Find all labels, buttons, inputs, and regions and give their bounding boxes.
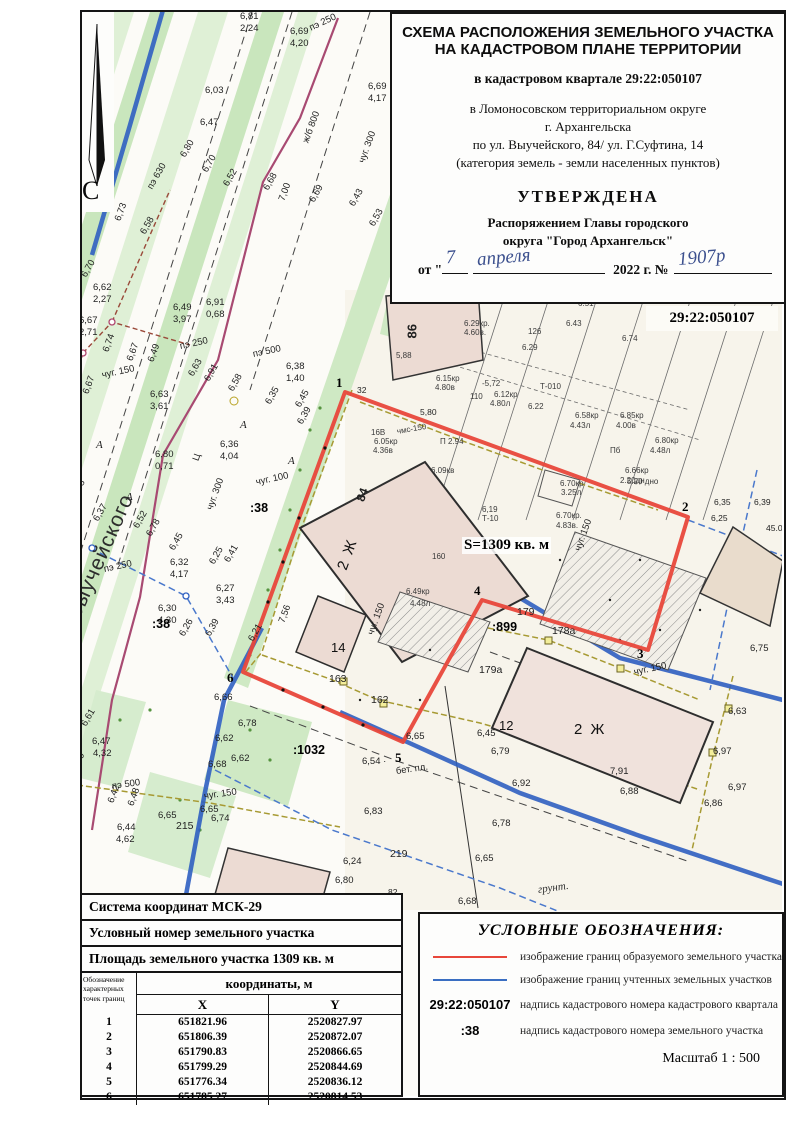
map-label: 6,63 [150,390,169,400]
table-header: Обозначение характерных точек границ коо… [82,973,401,1015]
map-label: 6.70кр [560,480,584,488]
map-label: 6,27 [216,584,235,594]
map-label: 6,62 [231,754,250,764]
map-label: 6,78 [238,719,257,729]
map-label: 84 [354,486,370,503]
cadastral-quarter-label: 29:22:050107 [646,306,778,331]
map-label: 6,44 [117,823,136,833]
point-number: 6 [82,1090,137,1105]
points-column-header: Обозначение характерных точек границ [82,973,137,1015]
table-row: 3651790.832520866.65 [82,1045,401,1060]
new-boundary-line-sample [433,956,507,958]
quarter-line: в кадастровом квартале 29:22:050107 [392,71,784,87]
map-label: 6,49 [173,303,192,313]
legend-items: изображение границ образуемого земельног… [420,951,782,1038]
map-label: 3,97 [173,315,192,325]
day-blank: 7 [442,260,468,274]
map-label: :38 [152,618,170,631]
map-label: 6,67 [80,316,98,326]
map-label: 6,79 [491,747,510,757]
coords-column-header: координаты, м [137,973,401,995]
number-blank: 1907р [674,260,772,274]
map-label: 6,21 [247,622,264,643]
month-blank: апреля [473,260,605,274]
map-label: 2 Ж [574,722,606,737]
map-label: 6,39 [296,405,313,426]
map-label: 4.60в. [464,329,486,337]
map-label: 6,80 [155,450,174,460]
map-label: 6,91 [203,362,220,383]
title-block: СХЕМА РАСПОЛОЖЕНИЯ ЗЕМЕЛЬНОГО УЧАСТКА НА… [390,12,786,304]
map-label: 3 [637,647,644,660]
map-label: 6,63 [728,707,747,717]
map-label: 0,71 [155,462,174,472]
map-label: 6,66 [214,693,233,703]
map-label: 6,53 [368,207,385,228]
map-label: 6,97 [728,783,747,793]
x-coordinate: 651785.27 [137,1090,269,1105]
map-label: 16В [371,429,385,437]
x-coordinate: 651806.39 [137,1030,269,1045]
map-label: 6.66кр [625,467,649,475]
map-label: 6,69 [290,27,309,37]
map-label: 6,80 [179,138,196,159]
y-coordinate: 2520844.69 [269,1060,401,1075]
north-letter: С [82,176,99,206]
map-label: А [96,440,103,451]
map-label: 6,67 [126,342,141,363]
map-label: 7,00 [278,182,293,203]
coords-body: 1651821.962520827.972651806.392520872.07… [82,1015,401,1105]
y-coordinate: 2520872.07 [269,1030,401,1045]
map-label: 12 [499,719,513,732]
map-label: 7,56 [278,604,293,625]
map-label: 5,80 [420,408,437,417]
handwritten-month: апреля [476,245,531,272]
legend-item: изображение границ образуемого земельног… [420,951,782,963]
map-label: 4.36в [373,447,393,455]
map-label: чуг. 150 [633,661,667,677]
map-label: 4,32 [93,749,112,759]
table-row: 4651799.292520844.69 [82,1060,401,1075]
map-label: Т-010 [540,383,561,391]
map-label: 215 [176,821,194,832]
registered-boundary-line-sample [433,979,507,981]
map-label: пэ 500 [252,344,282,359]
map-label: 6,74 [211,814,230,824]
map-label: 6,58 [80,478,87,499]
handwritten-day: 7 [445,247,456,270]
map-label: 6,69 [308,183,325,204]
map-label: 6,75 [750,644,769,654]
map-label: 6,63 [187,357,204,378]
map-label: 6,24 [343,857,362,867]
point-number: 3 [82,1045,137,1060]
map-label: 6,65 [158,811,177,821]
map-label: :1032 [293,744,325,757]
map-label: 6,92 [512,779,531,789]
address-line: по ул. Выучейского, 84/ ул. Г.Суфтина, 1… [392,137,784,153]
legend-item-text: надпись кадастрового номера кадастрового… [520,999,778,1011]
map-label: 6.49кр [406,588,430,596]
legend-item: изображение границ учтенных земельных уч… [420,974,782,986]
legend-sample-text: 29:22:050107 [430,997,511,1012]
map-label: 6,80 [335,876,354,886]
map-label: 4,17 [170,570,189,580]
map-label: 179а [479,665,502,676]
map-label: 6.22 [528,403,544,411]
point-number: 5 [82,1075,137,1090]
x-column-header: X [137,995,269,1015]
map-label: чуг. 300 [206,477,226,511]
map-label: чуг. 100 [255,471,289,487]
map-label: :38 [250,502,268,515]
table-row: 1651821.962520827.97 [82,1015,401,1030]
map-label: 6,88 [620,787,639,797]
map-label: 2 [682,500,689,513]
map-label: 6,39 [204,617,221,638]
map-label: 6,67 [82,375,97,396]
map-label: чуг. 300 [358,130,378,164]
legend-item-text: надпись кадастрового номера земельного у… [520,1025,763,1037]
map-label: 32 [357,386,366,395]
coordinates-table: Система координат МСК-29 Условный номер … [80,893,403,1097]
map-label: 6.70кр. [556,512,582,520]
y-column-header: Y [269,995,401,1015]
legend-sample-text: :38 [461,1023,480,1038]
map-label: 6,70 [201,153,218,174]
map-label: 4.00в [616,422,636,430]
y-coordinate: 2520866.65 [269,1045,401,1060]
map-label: 6,78 [145,517,162,538]
map-label: 179 [517,607,535,618]
map-label: 6.29 [522,344,538,352]
map-label: 4.80л [490,400,510,408]
map-label: 6.80кр [655,437,679,445]
approved-heading: УТВЕРЖДЕНА [392,187,784,207]
map-label: 6,81 [240,12,259,22]
conditional-number-row: Условный номер земельного участка [82,921,401,947]
y-coordinate: 2520827.97 [269,1015,401,1030]
map-label: 6,68 [262,171,279,192]
map-label: 0,68 [206,310,225,320]
map-label: чуг. 150 [203,787,237,801]
map-label: 4 [474,584,481,597]
map-label: 6,62 [215,734,234,744]
map-label: 6.58кр [575,412,599,420]
y-coordinate: 2520814.53 [269,1090,401,1105]
table-row: 6651785.272520814.53 [82,1090,401,1105]
legend-item-text: изображение границ учтенных земельных уч… [520,974,772,986]
map-label: А [240,420,247,431]
map-label: 5,88 [396,352,412,360]
map-label: чмс-150 [396,423,427,436]
date-year: 2022 г. № [613,262,668,277]
map-label: 4.48л [410,600,430,608]
map-label: П 2.94 [440,438,464,446]
handwritten-number: 1907р [678,245,727,271]
x-coordinate: 651776.34 [137,1075,269,1090]
y-coordinate: 2520836.12 [269,1075,401,1090]
table-row: 2651806.392520872.07 [82,1030,401,1045]
map-label: 6,59 [80,752,87,773]
map-label: 6,47 [200,118,219,128]
legend: УСЛОВНЫЕ ОБОЗНАЧЕНИЯ: изображение границ… [418,912,784,1097]
map-label: 6,78 [492,819,511,829]
map-label: чуг. 150 [101,364,135,380]
map-label: 6.85кр [620,412,644,420]
map-label: грунт. [537,880,569,896]
map-label: 5 [395,751,402,764]
map-label: 6,91 [206,298,225,308]
map-label: 4.43л [570,422,590,430]
map-label: 86 [406,324,419,338]
map-label: 2 Ж [335,537,360,573]
map-label: 1,40 [286,374,305,384]
map-label: 6,36 [220,440,239,450]
map-label: пэ 250 [179,336,209,351]
map-label: 4,17 [368,94,387,104]
map-label: 4.80в [435,384,455,392]
map-label: 6,61 [80,707,97,728]
map-label: 14 [331,641,345,654]
map-label: 178а [552,626,575,637]
legend-item: :38надпись кадастрового номера земельног… [420,1023,782,1038]
map-label: 6.12кр [494,391,518,399]
map-label: 6.09кв [431,467,454,475]
map-label: 6,52 [222,167,239,188]
map-label: Пб [610,447,620,455]
map-label: 2,27 [93,295,112,305]
map-label: 6,54 · [362,757,386,767]
map-label: 6,65 [475,854,494,864]
map-label: 4,20 [290,39,309,49]
map-label: 6,97 [713,747,732,757]
map-label: 6,45 [477,729,496,739]
map-label: 6,74 [102,333,117,354]
date-prefix: от " [418,262,442,277]
map-label: 3.25л [561,489,581,497]
map-label: 6.74 [622,335,638,343]
map-label: 6,35 [714,498,731,507]
legend-title: УСЛОВНЫЕ ОБОЗНАЧЕНИЯ: [420,922,782,940]
scheme-title-line2: НА КАДАСТРОВОМ ПЛАНЕ ТЕРРИТОРИИ [392,41,784,58]
map-label: 4.83в. [556,522,578,530]
map-label: 219 [390,849,408,860]
x-coordinate: 651790.83 [137,1045,269,1060]
map-label: 6,19 [482,506,498,514]
legend-item-text: изображение границ образуемого земельног… [520,951,782,963]
map-label: 6,62 [93,283,112,293]
map-label: 6,03 [205,86,224,96]
x-coordinate: 651799.29 [137,1060,269,1075]
legend-item: 29:22:050107надпись кадастрового номера … [420,997,782,1012]
map-label: 6,48 [127,787,142,808]
map-label: 45.0 [766,524,782,533]
point-number: 4 [82,1060,137,1075]
street-name-label: Выучейского [80,491,139,624]
map-label: 5.20 дно [627,478,658,486]
area-row: Площадь земельного участка 1309 кв. м [82,947,401,973]
map-label: 163 [329,674,347,685]
map-label: 6,42 [107,784,122,805]
map-label: Ц [192,453,203,463]
map-label: 6,86 [704,799,723,809]
map-label: 3,61 [150,402,169,412]
map-label: 6,70 [80,258,97,279]
map-label: 6.05кр [374,438,398,446]
order-line1: Распоряжением Главы городского [392,215,784,231]
map-label: 1 [336,376,343,389]
map-label: 162 [371,695,389,706]
map-label: :899 [492,621,517,634]
map-label: 6,39 [754,498,771,507]
map-label: 4.48л [650,447,670,455]
map-label: чуг. 150 [367,602,387,636]
map-label: 160 [432,553,445,561]
coordinate-system-row: Система координат МСК-29 [82,895,401,921]
map-label: 6.29кр. [464,320,490,328]
map-label: 6,58 [227,372,244,393]
map-label: 6,35 [264,385,281,406]
map-label: S=1309 кв. м [462,537,551,554]
cadastral-scheme-page: 6,812,246,694,20пэ 2506,036,47ж/б 8006,8… [0,0,800,1130]
map-label: 6,26 [178,617,195,638]
map-label: бет. пл. [395,763,428,777]
map-label: 2,71 [80,328,98,338]
map-label: 6,73 [114,202,129,223]
map-label: 6,69 [368,82,387,92]
map-label: 110 [470,393,483,401]
map-label: 6 [227,671,234,684]
map-label: 4,04 [220,452,239,462]
land-category-line: (категория земель - земли населенных пун… [392,155,784,171]
approval-date-line: от "7апреля2022 г. №1907р [418,260,772,278]
map-label: 3,43 [216,596,235,606]
map-label: 4,62 [116,835,135,845]
map-label: пэ 250 [308,12,338,33]
scheme-title-line1: СХЕМА РАСПОЛОЖЕНИЯ ЗЕМЕЛЬНОГО УЧАСТКА [392,24,784,41]
map-label: Т-10 [482,515,498,523]
map-label: 6,25 [711,514,728,523]
map-label: 6,30 [158,604,177,614]
map-label: пэ 630 [146,162,168,191]
map-label: 6,58 [139,215,156,236]
map-label: 6,68 [208,760,227,770]
map-label: 2,24 [240,24,259,34]
point-number: 2 [82,1030,137,1045]
map-label: 6,83 [364,807,383,817]
map-label: 6,43 [348,187,365,208]
map-label: 6,32 [170,558,189,568]
district-line2: г. Архангельска [392,119,784,135]
map-label: ж/б 800 [302,110,322,144]
map-label: 6,47 [92,737,111,747]
map-label: 6,41 [223,543,240,564]
map-label: 6.15кр [436,375,460,383]
map-label: 126 [528,328,541,336]
map-label: -5,72 [482,380,500,388]
map-label: 6,38 [286,362,305,372]
map-label: А [288,456,295,467]
scale-label: Масштаб 1 : 500 [662,1051,760,1067]
map-label: 6,49 [147,343,162,364]
map-label: 6,65 [406,732,425,742]
map-label: 6,68 [458,897,477,907]
table-row: 5651776.342520836.12 [82,1075,401,1090]
map-label: 6,45 [168,531,185,552]
district-line1: в Ломоносовском территориальном округе [392,101,784,117]
map-label: 7,91 [610,767,629,777]
map-label: 6.43 [566,320,582,328]
point-number: 1 [82,1015,137,1030]
x-coordinate: 651821.96 [137,1015,269,1030]
